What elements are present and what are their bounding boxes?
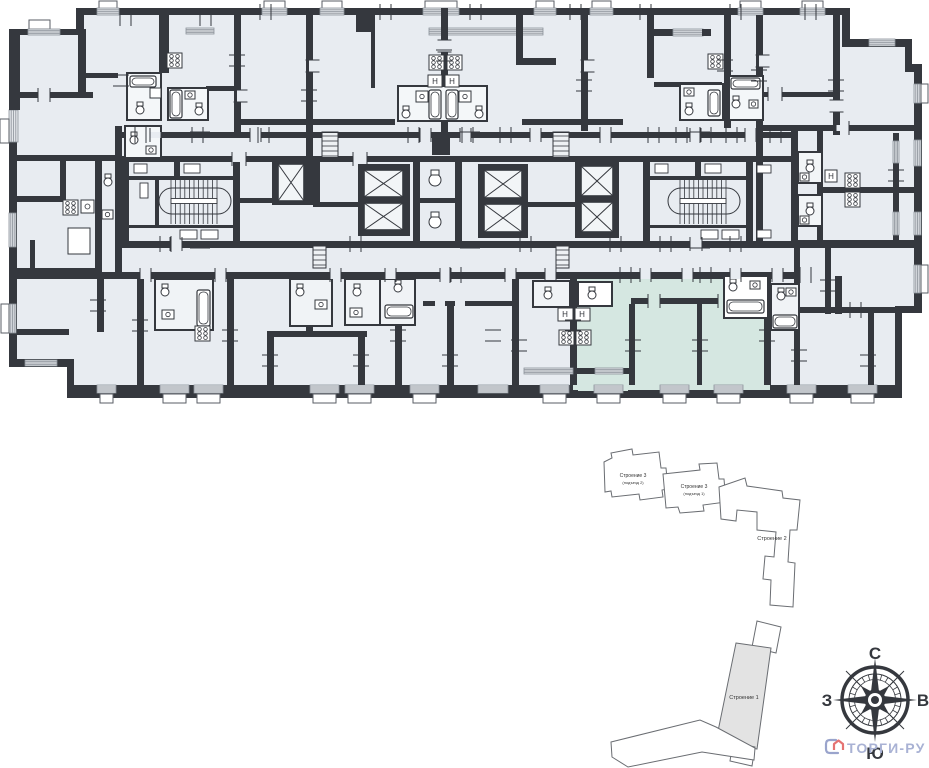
svg-text:Строение 1: Строение 1: [729, 695, 758, 701]
svg-text:H: H: [562, 310, 568, 319]
svg-text:(подъезд 1): (подъезд 1): [683, 491, 705, 496]
svg-text:H: H: [828, 172, 834, 181]
svg-text:H: H: [432, 77, 438, 86]
svg-text:З: З: [822, 691, 833, 710]
svg-text:H: H: [449, 77, 455, 86]
svg-text:Строение 2: Строение 2: [757, 536, 786, 542]
svg-text:В: В: [917, 691, 929, 710]
svg-text:Строение 3: Строение 3: [681, 484, 708, 490]
svg-text:Строение 3: Строение 3: [620, 473, 647, 479]
svg-text:H: H: [579, 310, 585, 319]
svg-text:С: С: [869, 644, 881, 663]
svg-text:ТОРГИ-РУ: ТОРГИ-РУ: [847, 740, 926, 756]
svg-text:(подъезд 2): (подъезд 2): [622, 480, 644, 485]
